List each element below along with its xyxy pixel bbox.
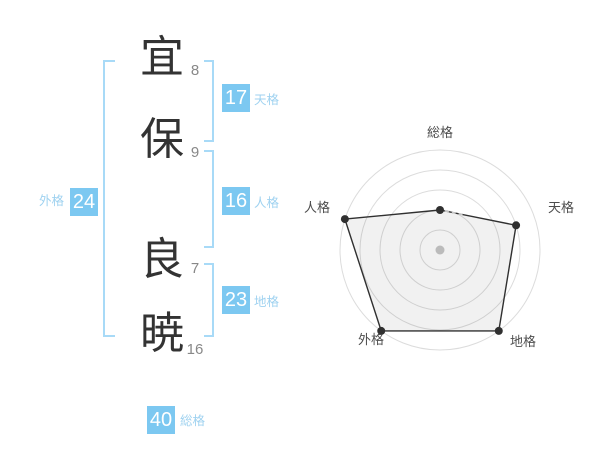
radar-axis-label-gaikaku: 外格: [358, 332, 384, 347]
stroke-count: 8: [184, 63, 206, 78]
tenkaku-score-box: 17: [222, 84, 250, 112]
radar-axis-label-chikaku: 地格: [510, 334, 536, 349]
radar-axis-label-soukaku: 総格: [427, 125, 453, 140]
jinkaku-score-box: 16: [222, 187, 250, 215]
tenkaku-score-label: 天格: [254, 93, 279, 107]
soukaku-score-box: 40: [147, 406, 175, 434]
bracket-gaikaku: [103, 60, 115, 337]
stroke-count: 16: [184, 342, 206, 357]
gaikaku-score-label: 外格: [39, 194, 64, 208]
bracket-tenkaku: [204, 60, 214, 142]
gaikaku-score-box: 24: [70, 188, 98, 216]
chikaku-score-box: 23: [222, 286, 250, 314]
radar-grid-and-series: [340, 150, 540, 350]
name-char: 保: [136, 118, 188, 162]
name-analysis-page: 宜 保 良 暁 8 9 7 16 17 天格 16 人格 23 地格 外格 24…: [0, 0, 600, 470]
bracket-chikaku: [204, 263, 214, 337]
jinkaku-score-label: 人格: [254, 196, 279, 210]
chikaku-score-label: 地格: [254, 295, 279, 309]
stroke-count: 9: [184, 145, 206, 160]
soukaku-score-label: 総格: [180, 414, 205, 428]
name-char: 良: [136, 238, 188, 282]
stroke-count: 7: [184, 261, 206, 276]
radar-axis-label-tenkaku: 天格: [548, 200, 574, 215]
radar-chart: 総格 天格 地格 外格 人格: [290, 95, 590, 375]
name-char: 宜: [136, 36, 188, 80]
bracket-jinkaku: [204, 150, 214, 248]
name-char: 暁: [136, 312, 188, 356]
radar-axis-label-jinkaku: 人格: [304, 200, 330, 215]
